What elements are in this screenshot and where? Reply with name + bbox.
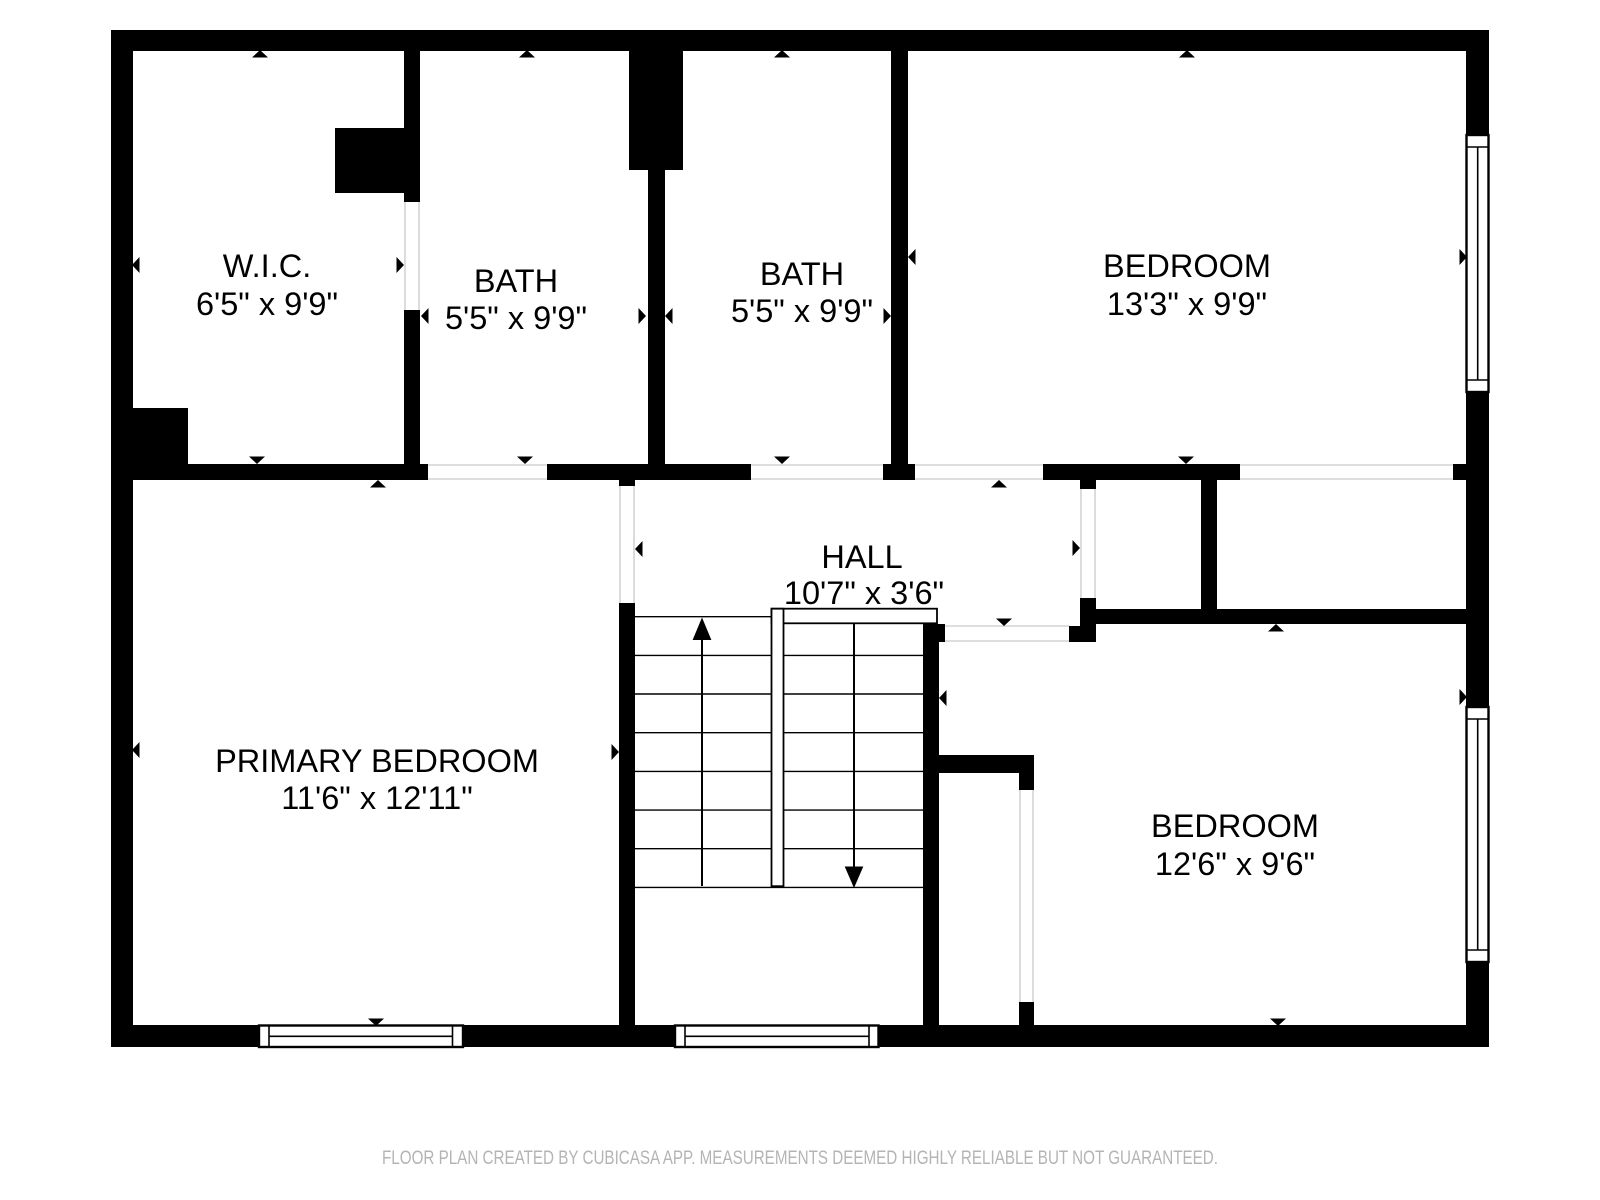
svg-text:HALL: HALL [821, 539, 902, 575]
svg-text:10'7" x 3'6": 10'7" x 3'6" [784, 575, 944, 611]
svg-text:FLOOR PLAN CREATED BY CUBICASA: FLOOR PLAN CREATED BY CUBICASA APP. MEAS… [382, 1147, 1218, 1169]
svg-text:BEDROOM: BEDROOM [1151, 808, 1319, 844]
svg-text:W.I.C.: W.I.C. [223, 248, 311, 284]
svg-text:6'5" x 9'9": 6'5" x 9'9" [196, 286, 338, 322]
svg-text:BEDROOM: BEDROOM [1103, 248, 1271, 284]
svg-text:5'5" x 9'9": 5'5" x 9'9" [731, 293, 873, 329]
svg-text:5'5" x 9'9": 5'5" x 9'9" [445, 300, 587, 336]
svg-text:PRIMARY BEDROOM: PRIMARY BEDROOM [215, 743, 539, 779]
svg-text:11'6" x 12'11": 11'6" x 12'11" [281, 780, 473, 816]
svg-text:12'6" x 9'6": 12'6" x 9'6" [1155, 846, 1315, 882]
svg-text:BATH: BATH [760, 256, 844, 292]
svg-text:BATH: BATH [474, 263, 558, 299]
svg-text:13'3" x 9'9": 13'3" x 9'9" [1107, 286, 1267, 322]
